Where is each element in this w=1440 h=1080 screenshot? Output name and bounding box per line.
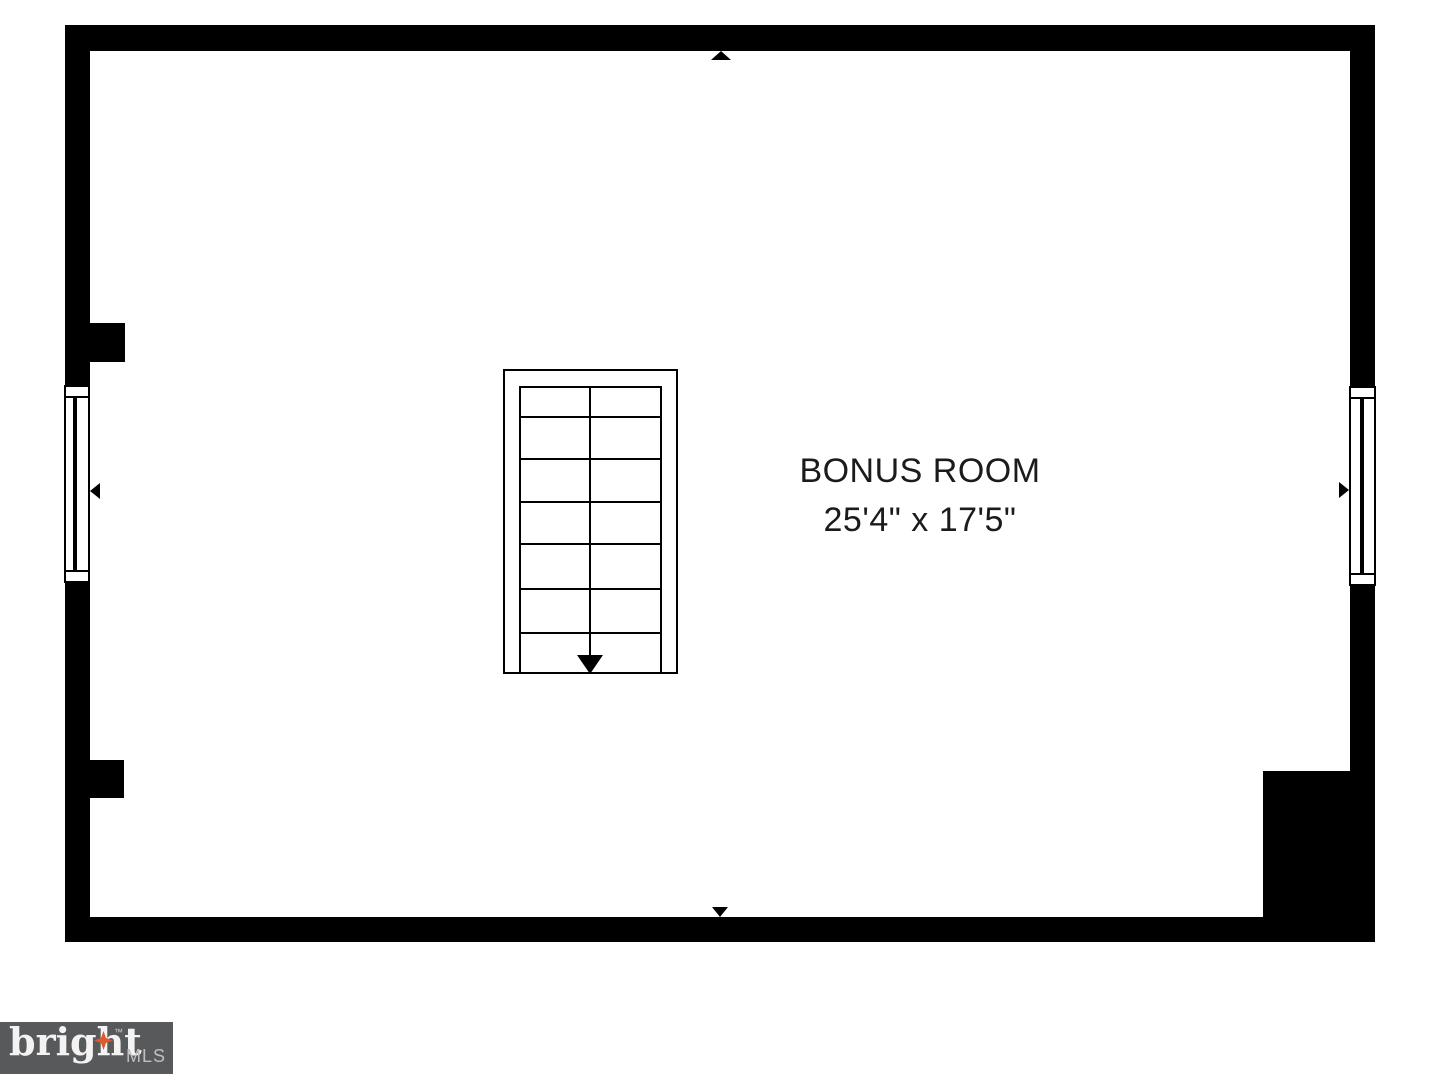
floor-plan-page: BONUS ROOM 25'4" x 17'5" bright ™ MLS <box>0 0 1440 1080</box>
wall-left-upper <box>65 25 90 385</box>
brightmls-logo: bright ™ MLS <box>0 1022 173 1074</box>
window-sill-line <box>1351 573 1374 575</box>
trademark-symbol: ™ <box>114 1027 123 1037</box>
west-arrow-icon <box>90 483 100 499</box>
wall-stub-lower-left <box>90 760 124 798</box>
window-sill-line <box>66 570 88 572</box>
wall-top <box>65 25 1375 51</box>
window-glass-line <box>1360 399 1364 573</box>
wall-bottom <box>65 917 1375 942</box>
logo-suffix-text: MLS <box>126 1046 166 1067</box>
window-glass-line <box>73 398 77 570</box>
wall-left-lower <box>65 582 90 942</box>
window-sill-line <box>66 396 88 398</box>
stair-direction-down-arrow-icon <box>577 655 603 674</box>
stair-center-line <box>589 388 591 672</box>
window-right <box>1349 386 1376 586</box>
wall-stub-upper-left <box>90 323 125 362</box>
wall-right-upper <box>1350 25 1375 386</box>
wall-block-bottom-right <box>1263 771 1375 942</box>
north-arrow-icon <box>711 51 731 60</box>
room-label: BONUS ROOM 25'4" x 17'5" <box>720 447 1120 545</box>
south-arrow-icon <box>712 907 728 917</box>
room-dimensions: 25'4" x 17'5" <box>720 496 1120 545</box>
window-left <box>64 385 90 583</box>
east-arrow-icon <box>1339 482 1349 498</box>
room-name: BONUS ROOM <box>720 447 1120 496</box>
